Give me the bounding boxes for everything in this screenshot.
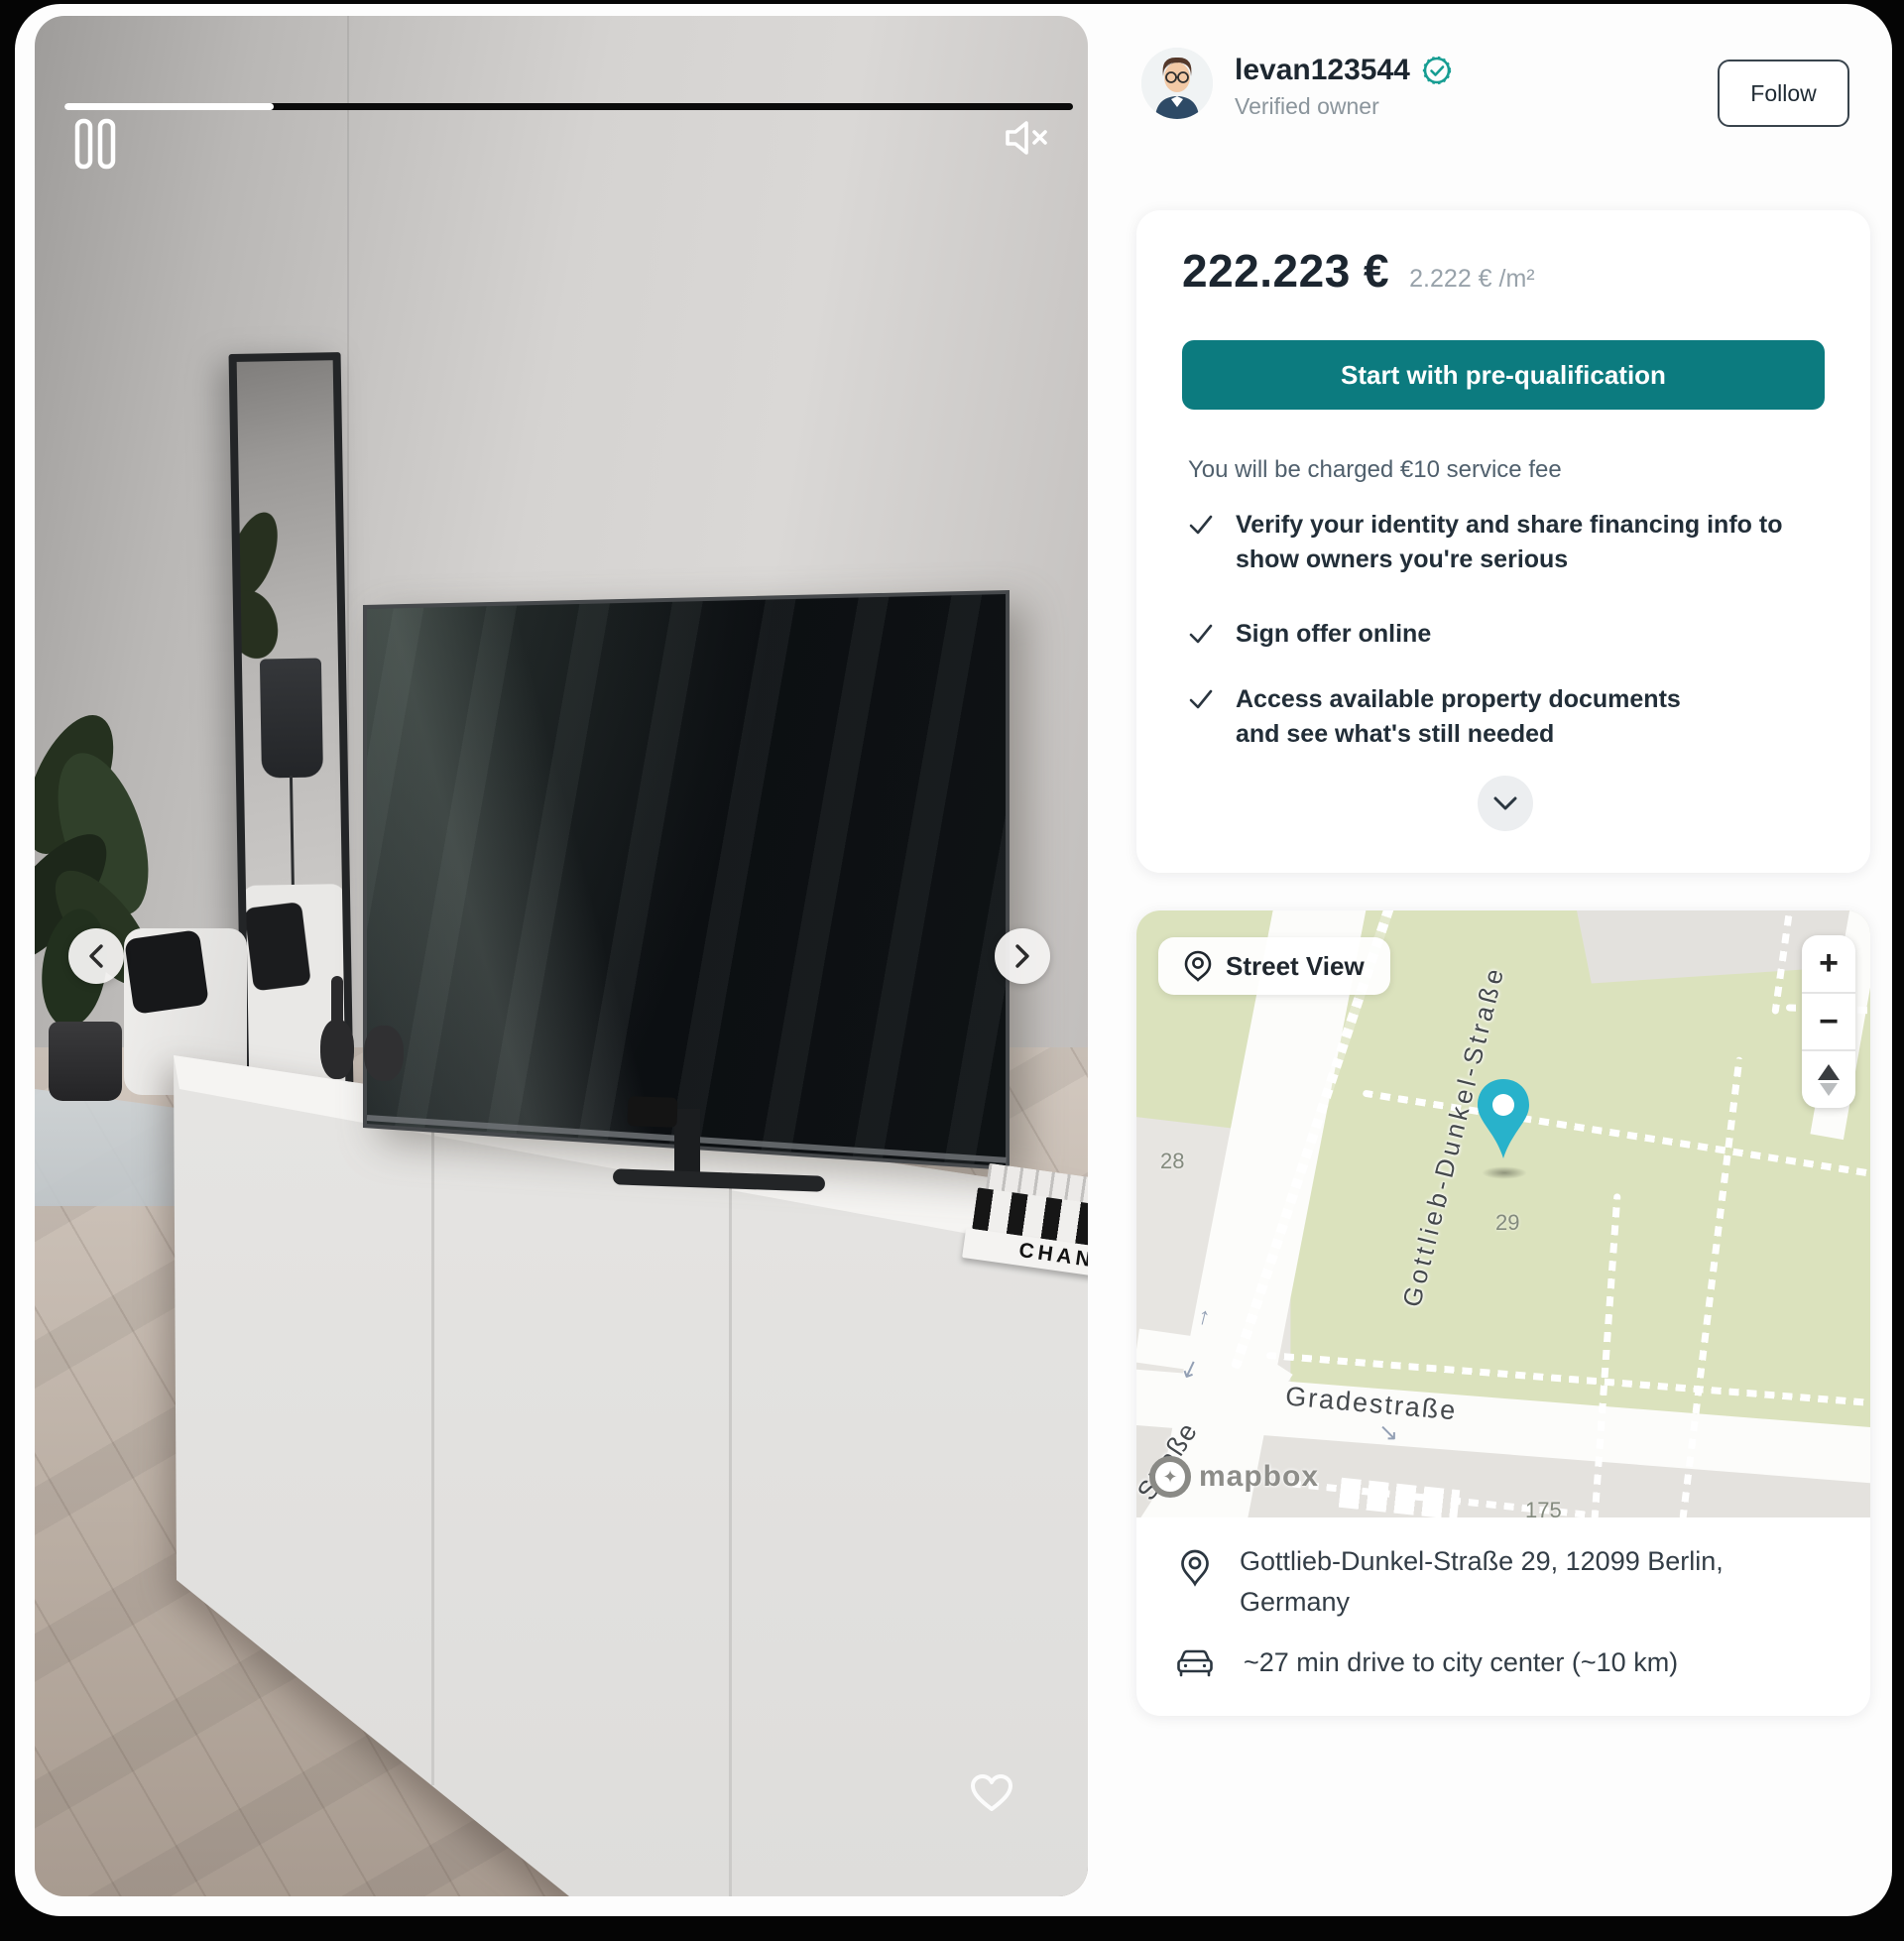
property-address: Gottlieb-Dunkel-Straße 29, 12099 Berlin,… <box>1240 1541 1815 1623</box>
vase <box>320 1020 354 1079</box>
parcel-number: 28 <box>1160 1149 1184 1174</box>
page-background: CHANEL <box>0 0 1904 1941</box>
next-photo-button[interactable] <box>995 928 1050 984</box>
book-stack: CHANEL <box>956 1161 1088 1326</box>
owner-username[interactable]: levan123544 <box>1235 54 1410 87</box>
pricing-card: 222.223 € 2.222 € /m² Start with pre-qua… <box>1136 210 1870 873</box>
previous-photo-button[interactable] <box>68 928 124 984</box>
price: 222.223 € <box>1182 244 1389 298</box>
service-fee-note: You will be charged €10 service fee <box>1188 456 1562 484</box>
owner-subtitle: Verified owner <box>1235 93 1379 120</box>
car-icon <box>1176 1648 1214 1678</box>
map-controls: + − <box>1802 935 1855 1108</box>
mapbox-logo-icon: ✦ <box>1149 1456 1191 1498</box>
map-compass-button[interactable] <box>1802 1049 1855 1108</box>
television <box>35 16 1088 1896</box>
mapbox-attribution[interactable]: ✦ mapbox <box>1149 1456 1319 1498</box>
chevron-down-icon <box>1492 795 1518 811</box>
map-zoom-out-button[interactable]: − <box>1802 992 1855 1050</box>
follow-button[interactable]: Follow <box>1718 60 1849 127</box>
video-progress-played <box>64 103 274 110</box>
media-box <box>627 1096 677 1128</box>
check-icon <box>1188 686 1214 712</box>
map-zoom-in-button[interactable]: + <box>1802 935 1855 992</box>
pause-icon[interactable] <box>74 118 134 175</box>
parcel-number: 175 <box>1525 1498 1562 1517</box>
video-progress-bar[interactable] <box>64 103 1073 110</box>
listing-page: CHANEL <box>15 4 1892 1916</box>
verified-badge-icon <box>1422 56 1452 85</box>
location-card: ↑ ↙ ↘ Gottlieb-Dunkel-Straße Gradestraße… <box>1136 910 1870 1716</box>
street-view-pin-icon <box>1184 950 1212 982</box>
benefit-item: Sign offer online <box>1188 617 1431 652</box>
property-video-player[interactable]: CHANEL <box>35 16 1088 1896</box>
price-per-sqm: 2.222 € /m² <box>1409 265 1534 294</box>
check-icon <box>1188 512 1214 538</box>
parcel-number: 29 <box>1495 1210 1519 1236</box>
one-way-arrow: ↘ <box>1378 1418 1398 1447</box>
check-icon <box>1188 621 1214 647</box>
owner-avatar[interactable] <box>1141 48 1213 119</box>
muted-speaker-icon[interactable] <box>1005 119 1050 162</box>
benefit-item: Verify your identity and share financing… <box>1188 508 1786 577</box>
location-pin-icon <box>1180 1549 1210 1587</box>
map[interactable]: ↑ ↙ ↘ Gottlieb-Dunkel-Straße Gradestraße… <box>1136 910 1870 1517</box>
expand-details-button[interactable] <box>1478 776 1533 831</box>
benefit-item: Access available property documents and … <box>1188 682 1731 752</box>
vase <box>364 1026 404 1081</box>
favorite-heart-icon[interactable] <box>970 1773 1013 1818</box>
drive-time-row: ~27 min drive to city center (~10 km) <box>1176 1642 1678 1683</box>
drive-time: ~27 min drive to city center (~10 km) <box>1244 1642 1678 1683</box>
property-map-pin[interactable] <box>1475 1077 1532 1167</box>
address-row: Gottlieb-Dunkel-Straße 29, 12099 Berlin,… <box>1180 1541 1815 1623</box>
street-view-button[interactable]: Street View <box>1158 937 1390 995</box>
pre-qualification-button[interactable]: Start with pre-qualification <box>1182 340 1825 410</box>
tv-stand <box>674 1109 700 1180</box>
